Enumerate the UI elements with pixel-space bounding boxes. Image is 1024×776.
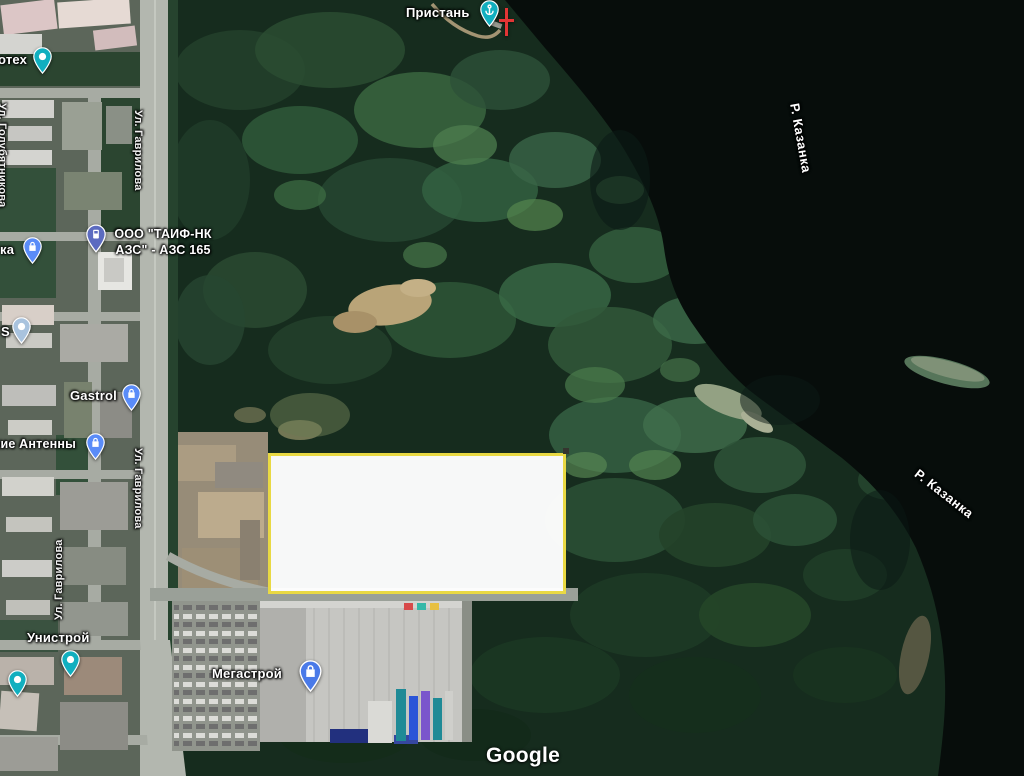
place-dot-icon	[18, 323, 25, 330]
pin-body	[34, 48, 51, 73]
place-dot-icon	[67, 656, 74, 663]
satellite-map[interactable]: Пристань отех ка ООО "ТАИФ-НК АЗС" - АЗС…	[0, 0, 1024, 776]
place-dot-icon	[14, 676, 21, 683]
poi-label-taif[interactable]: ООО "ТАИФ-НК АЗС" - АЗС 165	[107, 226, 219, 258]
poi-label-ka[interactable]: ка	[0, 242, 14, 257]
poi-label-gastrol[interactable]: Gastrol	[70, 388, 117, 403]
poi-label-megastroy[interactable]: Мегастрой	[212, 666, 282, 681]
poi-label-otekh[interactable]: отех	[0, 52, 27, 67]
selected-parcel-overlay[interactable]	[268, 453, 566, 594]
taif-gas-station-pin[interactable]	[86, 224, 106, 253]
poi-label-unistroy[interactable]: Унистрой	[27, 630, 90, 645]
poi-label-antenny[interactable]: кие Антенны	[0, 437, 76, 452]
street-label-golubyatnikova: Ул. Голубятникова	[0, 103, 8, 207]
gastrol-shop-pin[interactable]	[122, 384, 141, 411]
street-label-gavrilova-3: Ул. Гаврилова	[53, 539, 66, 620]
street-label-gavrilova-2: Ул. Гаврилова	[131, 448, 144, 529]
place-dot-icon	[39, 53, 46, 60]
pin-body	[13, 318, 30, 343]
google-watermark: Google	[486, 744, 560, 768]
poi-label-pristan[interactable]: Пристань	[406, 5, 470, 20]
otekh-place-pin[interactable]	[33, 47, 52, 74]
poi-label-s[interactable]: S	[1, 324, 10, 339]
pier-marker-icon	[497, 8, 516, 38]
s-place-pin[interactable]	[12, 317, 31, 344]
poi-label-taif-line1: ООО "ТАИФ-НК	[107, 226, 219, 242]
megastroy-store-pin[interactable]	[299, 660, 322, 692]
unistroy-place-pin-a[interactable]	[61, 650, 80, 677]
antenny-shop-pin[interactable]	[86, 433, 105, 460]
satellite-imagery-layer	[0, 0, 1024, 776]
parcel-vertex-handle[interactable]	[563, 448, 569, 454]
fuel-pump-icon	[93, 230, 99, 239]
unistroy-place-pin-b[interactable]	[8, 670, 27, 697]
pin-body	[9, 671, 26, 696]
ka-shop-pin[interactable]	[23, 237, 42, 264]
poi-label-taif-line2: АЗС" - АЗС 165	[107, 242, 219, 258]
street-label-gavrilova-1: Ул. Гаврилова	[131, 110, 144, 191]
pin-body	[62, 651, 79, 676]
